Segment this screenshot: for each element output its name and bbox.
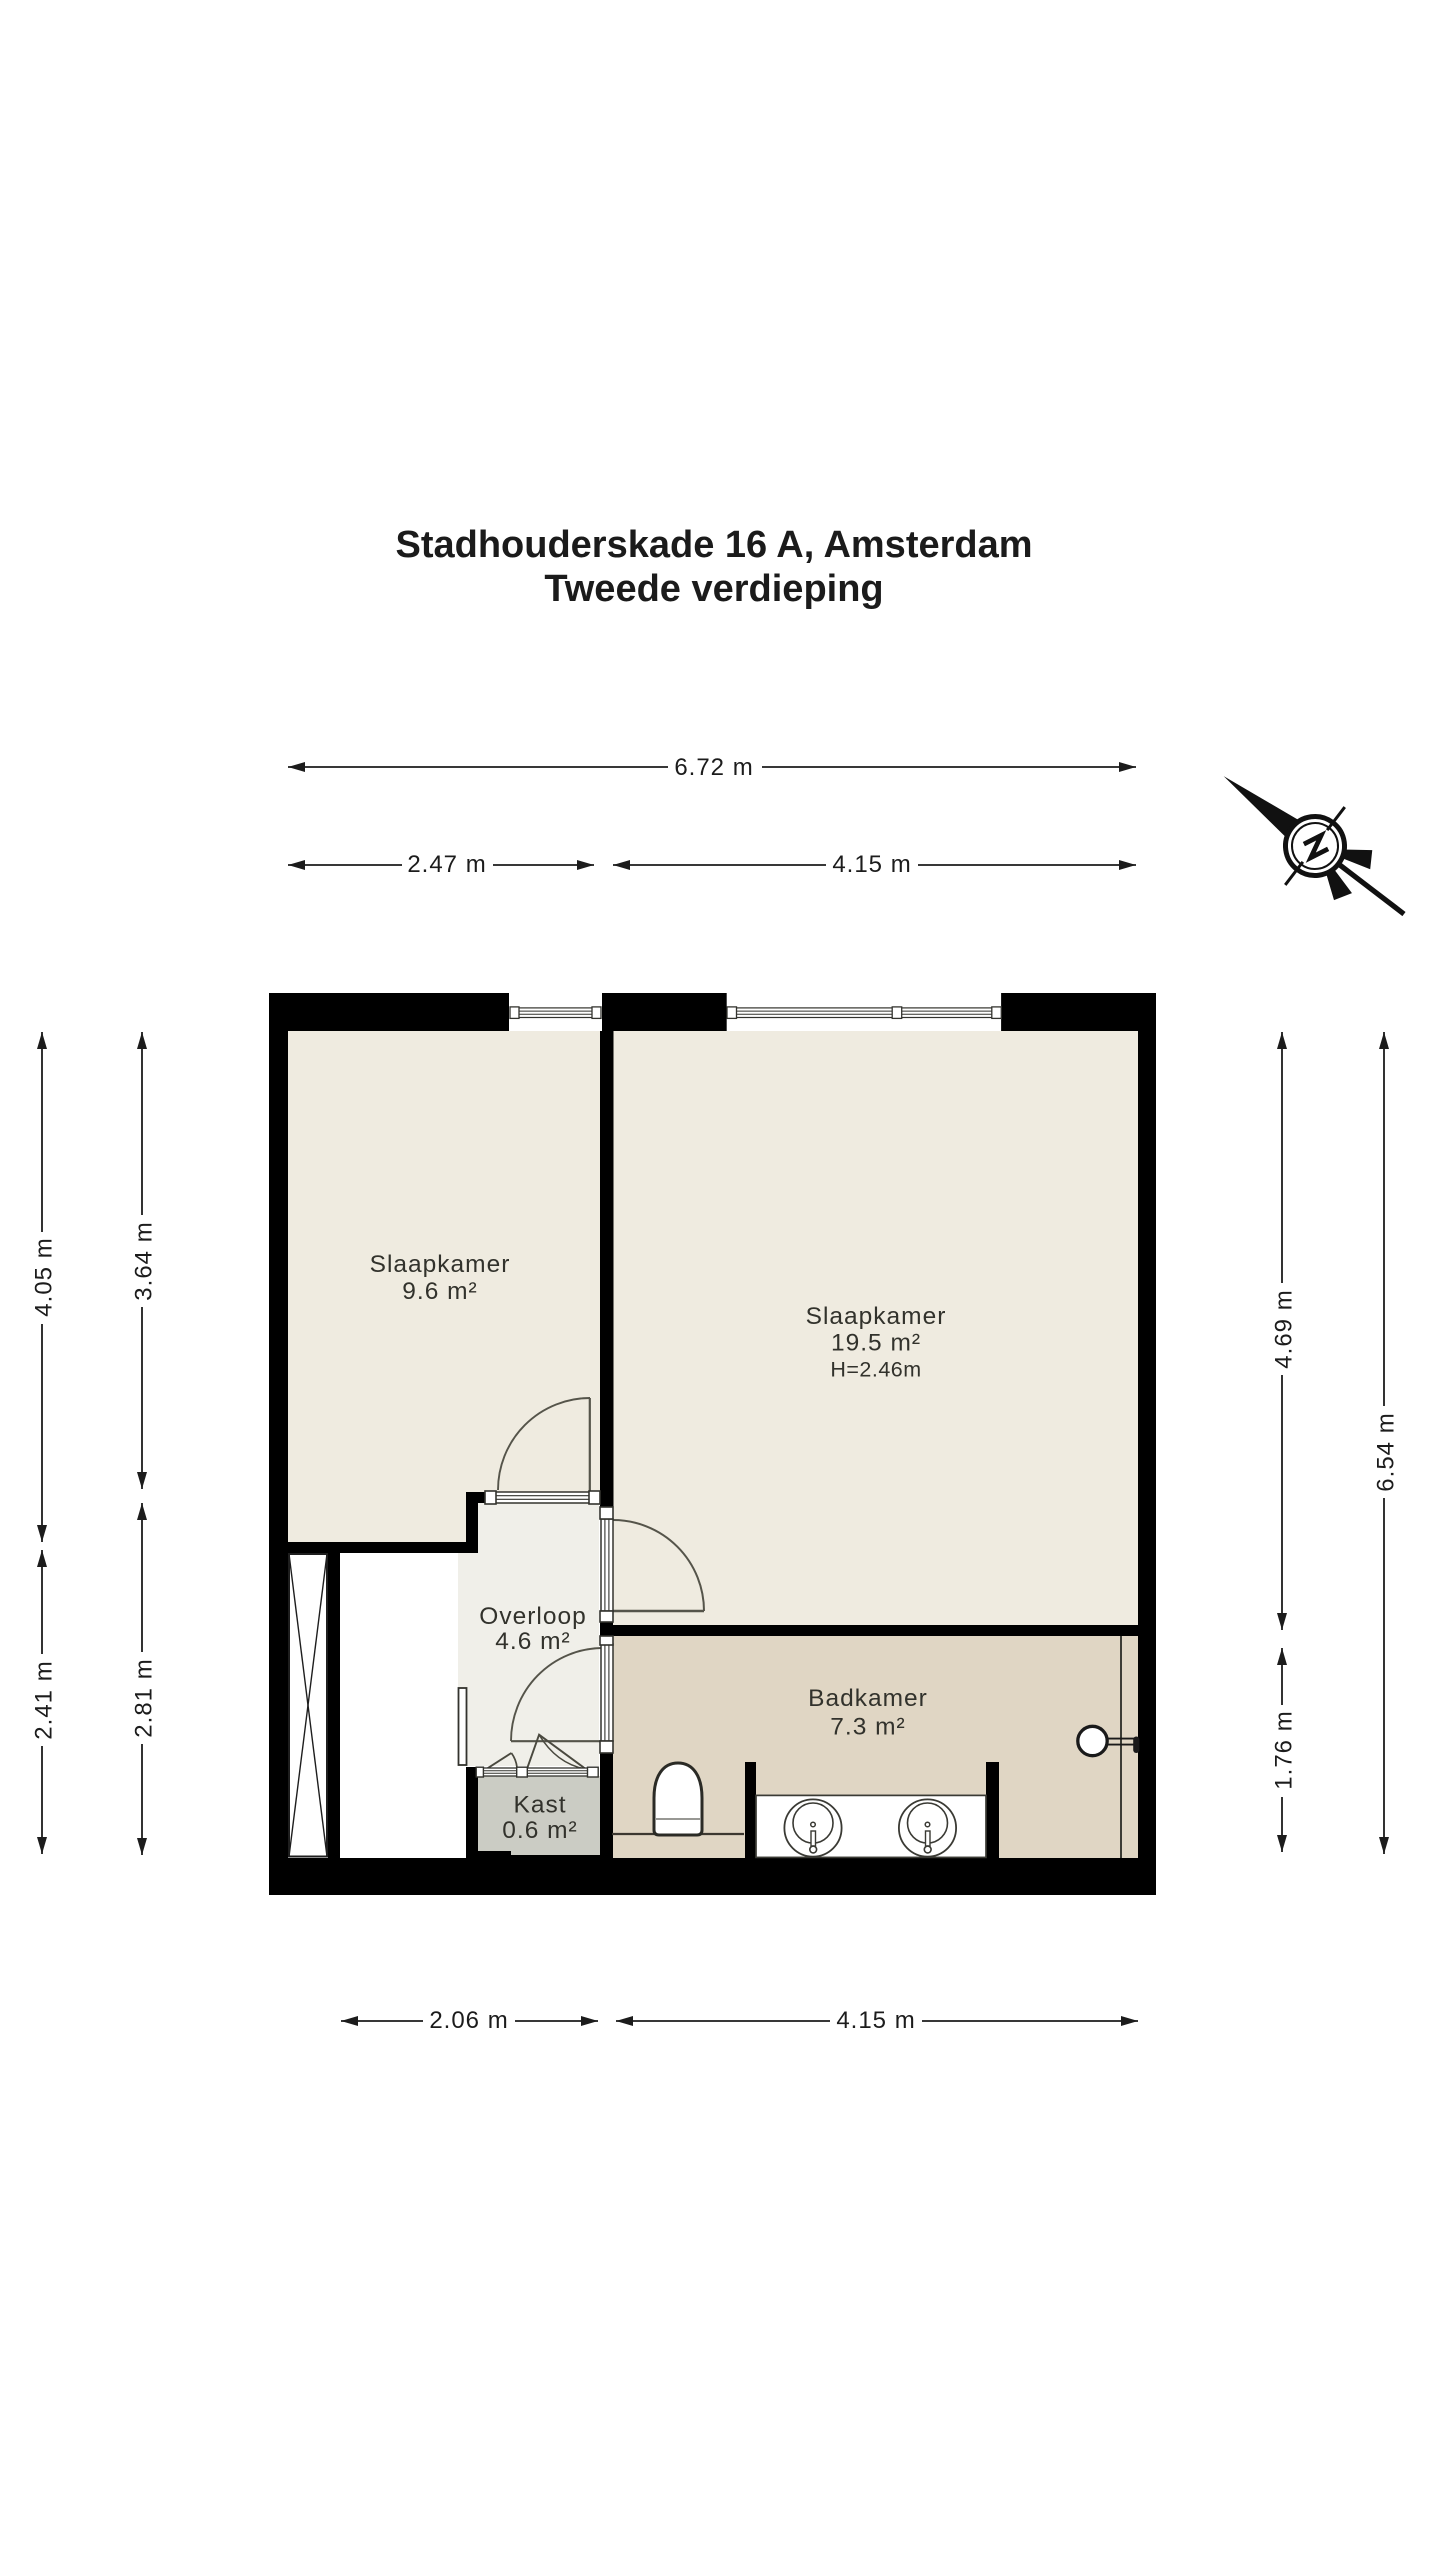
svg-text:Slaapkamer: Slaapkamer [370, 1251, 511, 1278]
svg-text:4.15 m: 4.15 m [832, 851, 911, 878]
svg-text:Overloop: Overloop [479, 1603, 586, 1630]
svg-text:Badkamer: Badkamer [808, 1685, 928, 1712]
svg-text:3.64 m: 3.64 m [131, 1221, 158, 1300]
svg-text:19.5 m²: 19.5 m² [831, 1330, 921, 1357]
svg-text:9.6 m²: 9.6 m² [402, 1278, 477, 1305]
svg-text:4.6 m²: 4.6 m² [495, 1628, 570, 1655]
svg-text:2.41 m: 2.41 m [31, 1660, 58, 1739]
svg-text:4.05 m: 4.05 m [31, 1237, 58, 1316]
svg-text:2.81 m: 2.81 m [131, 1658, 158, 1737]
svg-text:Tweede verdieping: Tweede verdieping [544, 568, 883, 610]
svg-text:4.69 m: 4.69 m [1271, 1289, 1298, 1368]
svg-text:6.54 m: 6.54 m [1373, 1412, 1400, 1491]
svg-text:Slaapkamer: Slaapkamer [806, 1303, 947, 1330]
svg-text:H=2.46m: H=2.46m [830, 1358, 921, 1382]
svg-text:0.6 m²: 0.6 m² [502, 1817, 577, 1844]
svg-text:Stadhouderskade 16 A, Amsterda: Stadhouderskade 16 A, Amsterdam [395, 524, 1032, 566]
svg-text:2.47 m: 2.47 m [407, 851, 486, 878]
svg-text:1.76 m: 1.76 m [1271, 1710, 1298, 1789]
svg-text:Kast: Kast [513, 1792, 566, 1819]
svg-text:2.06 m: 2.06 m [429, 2007, 508, 2034]
svg-text:4.15 m: 4.15 m [836, 2007, 915, 2034]
svg-text:7.3 m²: 7.3 m² [830, 1714, 905, 1741]
svg-text:6.72 m: 6.72 m [674, 754, 753, 781]
